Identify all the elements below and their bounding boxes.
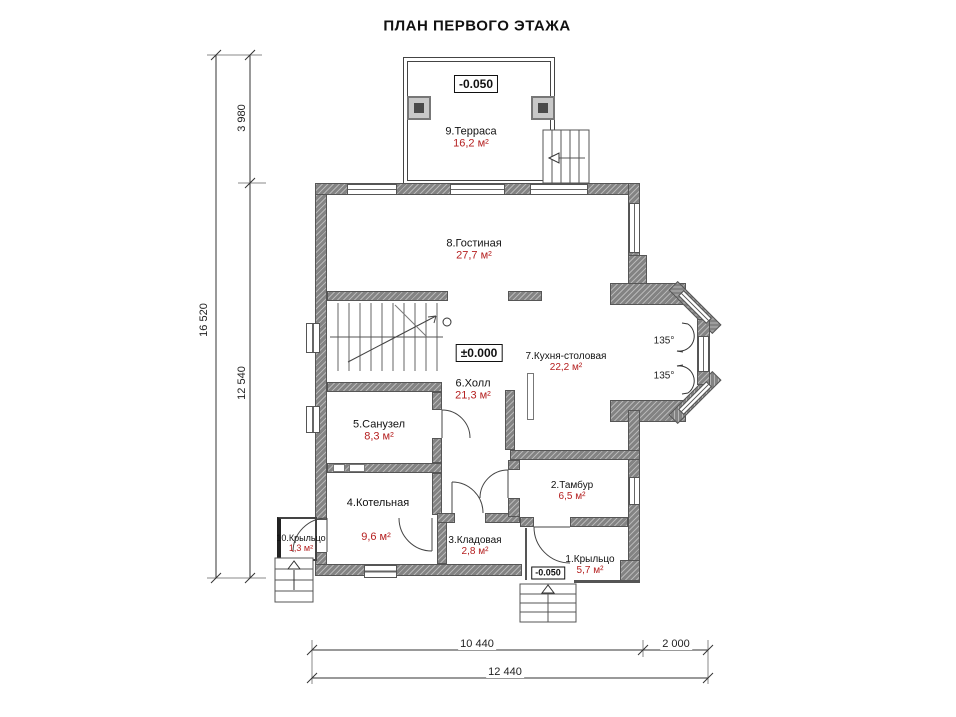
dim-horizontal-main: 10 440 bbox=[458, 638, 496, 650]
room-label-boiler: 4.Котельная bbox=[347, 497, 409, 509]
room-label-hall: 6.Холл21,3 м² bbox=[455, 378, 491, 403]
room-label-porch-1: 1.Крыльцо5,7 м² bbox=[565, 554, 614, 576]
entrance-stairs bbox=[520, 584, 576, 622]
dim-vertical-main: 12 540 bbox=[236, 364, 248, 402]
room-label-storage: 3.Кладовая2,8 м² bbox=[448, 535, 501, 557]
room-label-porch-10: 10.Крыльцо1,3 м² bbox=[276, 533, 325, 553]
room-label-kitchen: 7.Кухня-столовая22,2 м² bbox=[526, 351, 607, 373]
room-area-boiler: 9,6 м² bbox=[361, 531, 391, 543]
bay-angle-lower: 135° bbox=[654, 371, 675, 382]
room-label-bathroom: 5.Санузел8,3 м² bbox=[353, 419, 405, 444]
level-marker-terrace: -0.050 bbox=[454, 75, 498, 93]
dim-vertical-terrace: 3 980 bbox=[236, 102, 248, 134]
bay-angle-arcs bbox=[677, 323, 694, 394]
door-arcs bbox=[293, 410, 570, 563]
main-staircase bbox=[330, 303, 451, 371]
dim-horizontal-total: 12 440 bbox=[486, 666, 524, 678]
level-marker-porch: -0.050 bbox=[531, 567, 565, 580]
room-label-tambour: 2.Тамбур6,5 м² bbox=[551, 480, 593, 502]
level-marker-main: ±0.000 bbox=[456, 344, 503, 362]
plan-title: ПЛАН ПЕРВОГО ЭТАЖА bbox=[383, 18, 570, 35]
bay-angle-upper: 135° bbox=[654, 336, 675, 347]
dim-vertical-total: 16 520 bbox=[198, 301, 210, 339]
left-porch-stairs bbox=[275, 558, 313, 602]
dim-horizontal-bay: 2 000 bbox=[660, 638, 692, 650]
terrace-stairs bbox=[543, 130, 589, 183]
room-label-living: 8.Гостиная27,7 м² bbox=[446, 238, 501, 263]
room-label-terrace: 9.Терраса16,2 м² bbox=[445, 126, 496, 151]
